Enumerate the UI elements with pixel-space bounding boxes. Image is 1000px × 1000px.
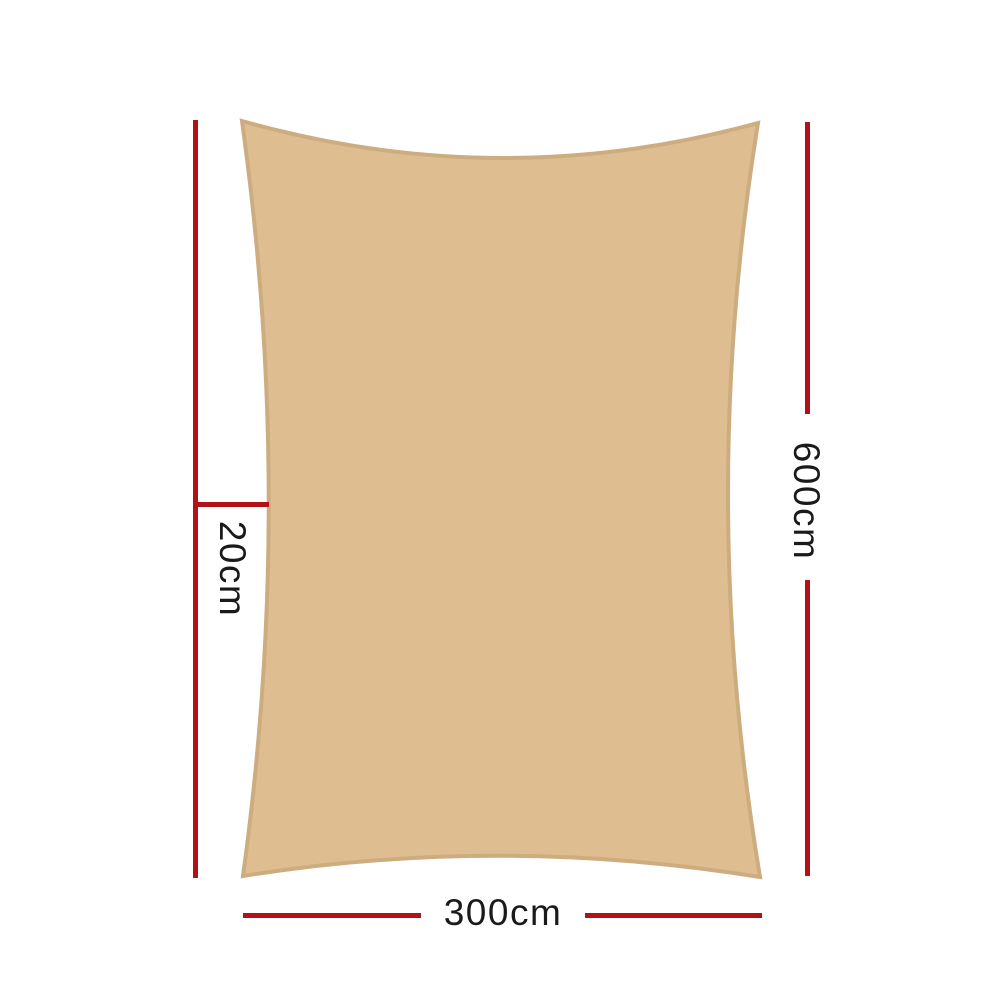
height-label: 600cm: [785, 442, 827, 561]
shade-sail-dimension-diagram: 20cm 600cm 300cm: [0, 0, 1000, 1000]
dimension-line-width-right: [585, 913, 762, 918]
width-label: 300cm: [444, 892, 563, 934]
dimension-line-width-left: [243, 913, 421, 918]
dimension-tick-curve-depth: [193, 502, 269, 507]
shade-sail-shape: [242, 121, 760, 877]
dimension-line-height-lower: [805, 580, 810, 876]
curve-depth-label: 20cm: [211, 521, 253, 617]
dimension-line-height-upper: [805, 122, 810, 414]
dimension-line-left-vertical: [193, 120, 198, 878]
sail-shape-canvas: [0, 0, 1000, 1000]
